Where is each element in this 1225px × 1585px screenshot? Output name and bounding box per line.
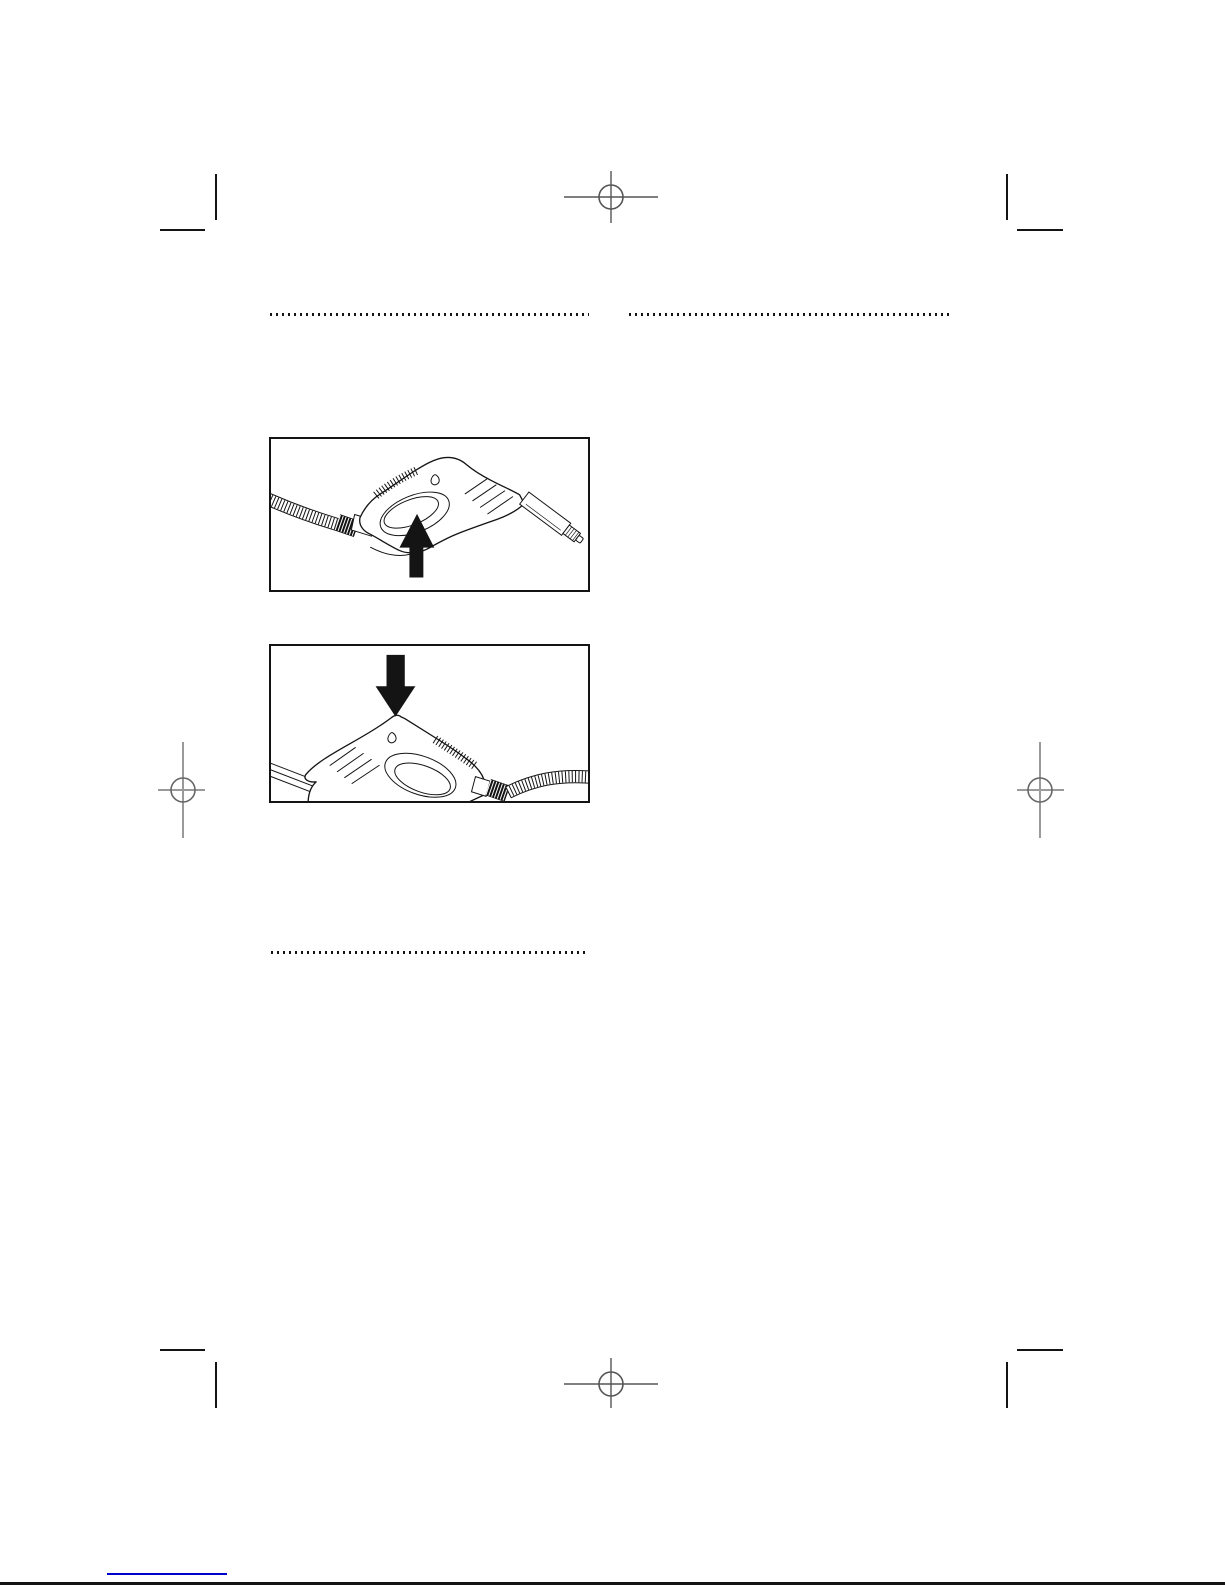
registration-mark-middle-left (157, 742, 209, 838)
footer-link-underline[interactable] (107, 1573, 227, 1575)
registration-mark-middle-right (1014, 742, 1066, 838)
down-arrow-icon (376, 655, 416, 717)
crop-mark-bottom-left-horizontal (160, 1349, 205, 1351)
crop-mark-top-left-vertical (215, 174, 217, 220)
crop-mark-top-right-horizontal (1017, 229, 1063, 231)
crop-mark-top-right-vertical (1006, 174, 1008, 220)
crop-mark-bottom-right-vertical (1006, 1362, 1008, 1408)
crop-mark-top-left-horizontal (160, 229, 205, 231)
hose-fitting (488, 787, 507, 794)
dotted-rule-top-right (629, 313, 950, 316)
crop-mark-bottom-left-vertical (215, 1362, 217, 1408)
hose (271, 499, 337, 525)
figure-frame-2 (269, 644, 590, 803)
registration-mark-top-center (564, 171, 658, 223)
dotted-rule-lower-left (271, 951, 589, 954)
figure-frame-1 (269, 437, 590, 592)
spray-gun-illustration-up (271, 439, 588, 590)
registration-mark-bottom-center (564, 1358, 658, 1408)
dotted-rule-top-left (270, 313, 589, 316)
crop-mark-bottom-right-horizontal (1017, 1349, 1063, 1351)
nozzle (520, 492, 587, 547)
spray-gun-illustration-down (271, 646, 588, 801)
scanned-manual-page: { "page": { "kind": "printed manual page… (0, 0, 1225, 1585)
hose (508, 777, 588, 793)
